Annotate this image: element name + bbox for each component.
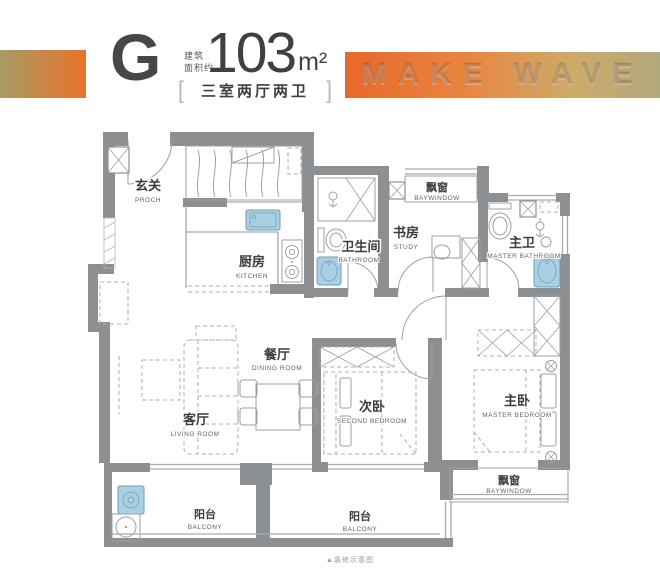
label-baywindow-top-en: BAYWINDOW xyxy=(414,195,460,202)
master-wardrobe-icon xyxy=(478,296,560,356)
label-kitchen-en: KITCHEN xyxy=(236,273,268,280)
label-second-bedroom-zh: 次卧 xyxy=(359,399,385,414)
second-wardrobe-icon xyxy=(320,347,394,367)
floorplan-page: G 建筑 面积约 103 m² [ 三室两厅两卫 ] MAKE WAVE xyxy=(0,0,660,583)
label-dining-zh: 餐厅 xyxy=(263,347,290,362)
coffee-table-icon xyxy=(142,360,180,400)
label-living-en: LIVING ROOM xyxy=(171,431,220,438)
room-living: 客厅 LIVING ROOM xyxy=(100,282,238,454)
master-bed-icon xyxy=(474,370,556,452)
room-bathroom: 卫生间 BATHROOM xyxy=(317,178,381,285)
label-entrance-zh: 玄关 xyxy=(135,178,161,193)
master-toilet-icon xyxy=(489,203,511,239)
label-study-zh: 书房 xyxy=(393,225,419,240)
room-balcony-left: 阳台 BALCONY xyxy=(112,486,222,541)
kitchen-sink-icon xyxy=(246,210,280,230)
room-kitchen: 厨房 KITCHEN xyxy=(186,206,302,292)
room-study: 飘窗 BAYWINDOW 书房 STUDY xyxy=(389,180,480,288)
label-master-bathroom-zh: 主卫 xyxy=(509,235,535,250)
label-balcony-left-zh: 阳台 xyxy=(194,507,216,521)
label-baywindow-bottom-zh: 飘窗 xyxy=(498,473,520,487)
label-bathroom-zh: 卫生间 xyxy=(341,239,380,254)
stove-icon xyxy=(282,240,302,282)
label-master-bedroom-en: MASTER BEDROOM xyxy=(482,412,551,419)
label-balcony-right-en: BALCONY xyxy=(343,526,378,533)
floor-plan: 玄关 PROCH xyxy=(0,0,660,583)
room-master-bathroom: 主卫 MASTER BATHROOM xyxy=(487,201,560,287)
label-second-bedroom-en: SECOND BEDROOM xyxy=(337,418,407,425)
disclaimer-note: ▲装修示意图 xyxy=(326,555,374,564)
label-living-zh: 客厅 xyxy=(183,412,209,427)
desk-icon xyxy=(432,236,460,259)
label-balcony-left-en: BALCONY xyxy=(188,524,223,531)
label-baywindow-top-zh: 飘窗 xyxy=(426,180,448,194)
dining-table-icon xyxy=(238,380,318,430)
balcony-basin-icon xyxy=(112,514,140,541)
label-baywindow-bottom-en: BAYWINDOW xyxy=(486,488,532,495)
room-balcony-right: 阳台 BALCONY xyxy=(343,509,378,533)
bathroom-sink-icon xyxy=(317,257,341,285)
label-dining-en: DINING ROOM xyxy=(252,365,302,372)
shower-icon xyxy=(329,192,337,207)
label-kitchen-zh: 厨房 xyxy=(239,254,265,269)
label-study-en: STUDY xyxy=(394,244,419,251)
master-shower-icon xyxy=(536,218,544,237)
label-master-bathroom-en: MASTER BATHROOM xyxy=(487,253,560,260)
entry-wardrobe-icon xyxy=(186,146,302,202)
room-dining: 餐厅 DINING ROOM xyxy=(238,347,318,430)
washing-machine-icon xyxy=(118,486,144,514)
label-balcony-right-zh: 阳台 xyxy=(349,509,371,523)
study-shelf-icon xyxy=(462,238,480,288)
label-master-bedroom-zh: 主卧 xyxy=(504,393,530,408)
label-bathroom-en: BATHROOM xyxy=(338,257,379,264)
label-entrance-en: PROCH xyxy=(135,197,161,204)
